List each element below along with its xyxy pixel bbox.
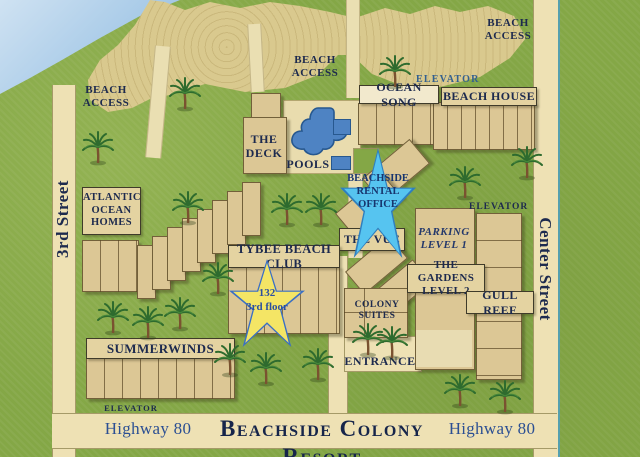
- highway-80-label-east: Highway 80: [444, 419, 540, 439]
- beach-house-label: BEACH HOUSE: [441, 87, 537, 106]
- summerwinds-label: SUMMERWINDS: [86, 338, 235, 359]
- elevator-label-south: ELEVATOR: [104, 403, 158, 413]
- beach-access-label-east: BEACH ACCESS: [476, 17, 540, 43]
- highway-80-label-west: Highway 80: [100, 419, 196, 439]
- palm-tree-icon: [301, 188, 341, 228]
- resort-map: POOLS THE DECK ELEVATOR OCEAN SONG BEACH…: [0, 0, 640, 457]
- palm-tree-icon: [93, 296, 133, 336]
- palm-tree-icon: [160, 292, 200, 332]
- palm-tree-icon: [78, 126, 118, 166]
- palm-tree-icon: [445, 161, 485, 201]
- beach-access-label-west: BEACH ACCESS: [74, 84, 138, 110]
- beach-access-label-center: BEACH ACCESS: [282, 54, 348, 80]
- unit-marker-text: 132 3rd floor: [229, 287, 305, 315]
- beach-path: [346, 0, 360, 98]
- atlantic-ocean-homes-label: ATLANTIC OCEAN HOMES: [82, 187, 141, 235]
- pools-label: POOLS: [286, 157, 330, 171]
- resort-title: Beachside Colony Resort: [192, 415, 452, 457]
- palm-tree-icon: [485, 375, 525, 415]
- gull-reef-label: GULL REEF: [466, 291, 534, 314]
- atlantic-homes-building: [82, 240, 139, 292]
- gardens-lower-building: [416, 330, 472, 367]
- center-street-label: Center Street: [535, 194, 555, 344]
- unit-132-marker: 132 3rd floor: [229, 259, 305, 347]
- parking-level-1-label: PARKING LEVEL 1: [413, 226, 475, 252]
- entrance-label: ENTRANCE: [344, 354, 416, 368]
- palm-tree-icon: [267, 188, 307, 228]
- elevator-label-north: ELEVATOR: [416, 74, 466, 86]
- palm-tree-icon: [128, 301, 168, 341]
- small-pool: [333, 119, 351, 135]
- ocean-song-label: OCEAN SONG: [359, 85, 439, 104]
- beach-house-building: [433, 102, 535, 150]
- elevator-label-east: ELEVATOR: [469, 202, 525, 213]
- palm-tree-icon: [246, 347, 286, 387]
- palm-tree-icon: [440, 369, 480, 409]
- third-street-label: 3rd Street: [53, 144, 73, 294]
- rental-office-marker: BEACHSIDE RENTAL OFFICE: [340, 148, 416, 258]
- the-deck-label: THE DECK: [241, 132, 287, 161]
- summerwinds-building: [86, 357, 235, 399]
- colony-suites-label: COLONY SUITES: [348, 300, 406, 323]
- rental-office-text: BEACHSIDE RENTAL OFFICE: [340, 172, 416, 211]
- ocean-song-building: [358, 103, 435, 145]
- townhome-unit: [242, 182, 261, 236]
